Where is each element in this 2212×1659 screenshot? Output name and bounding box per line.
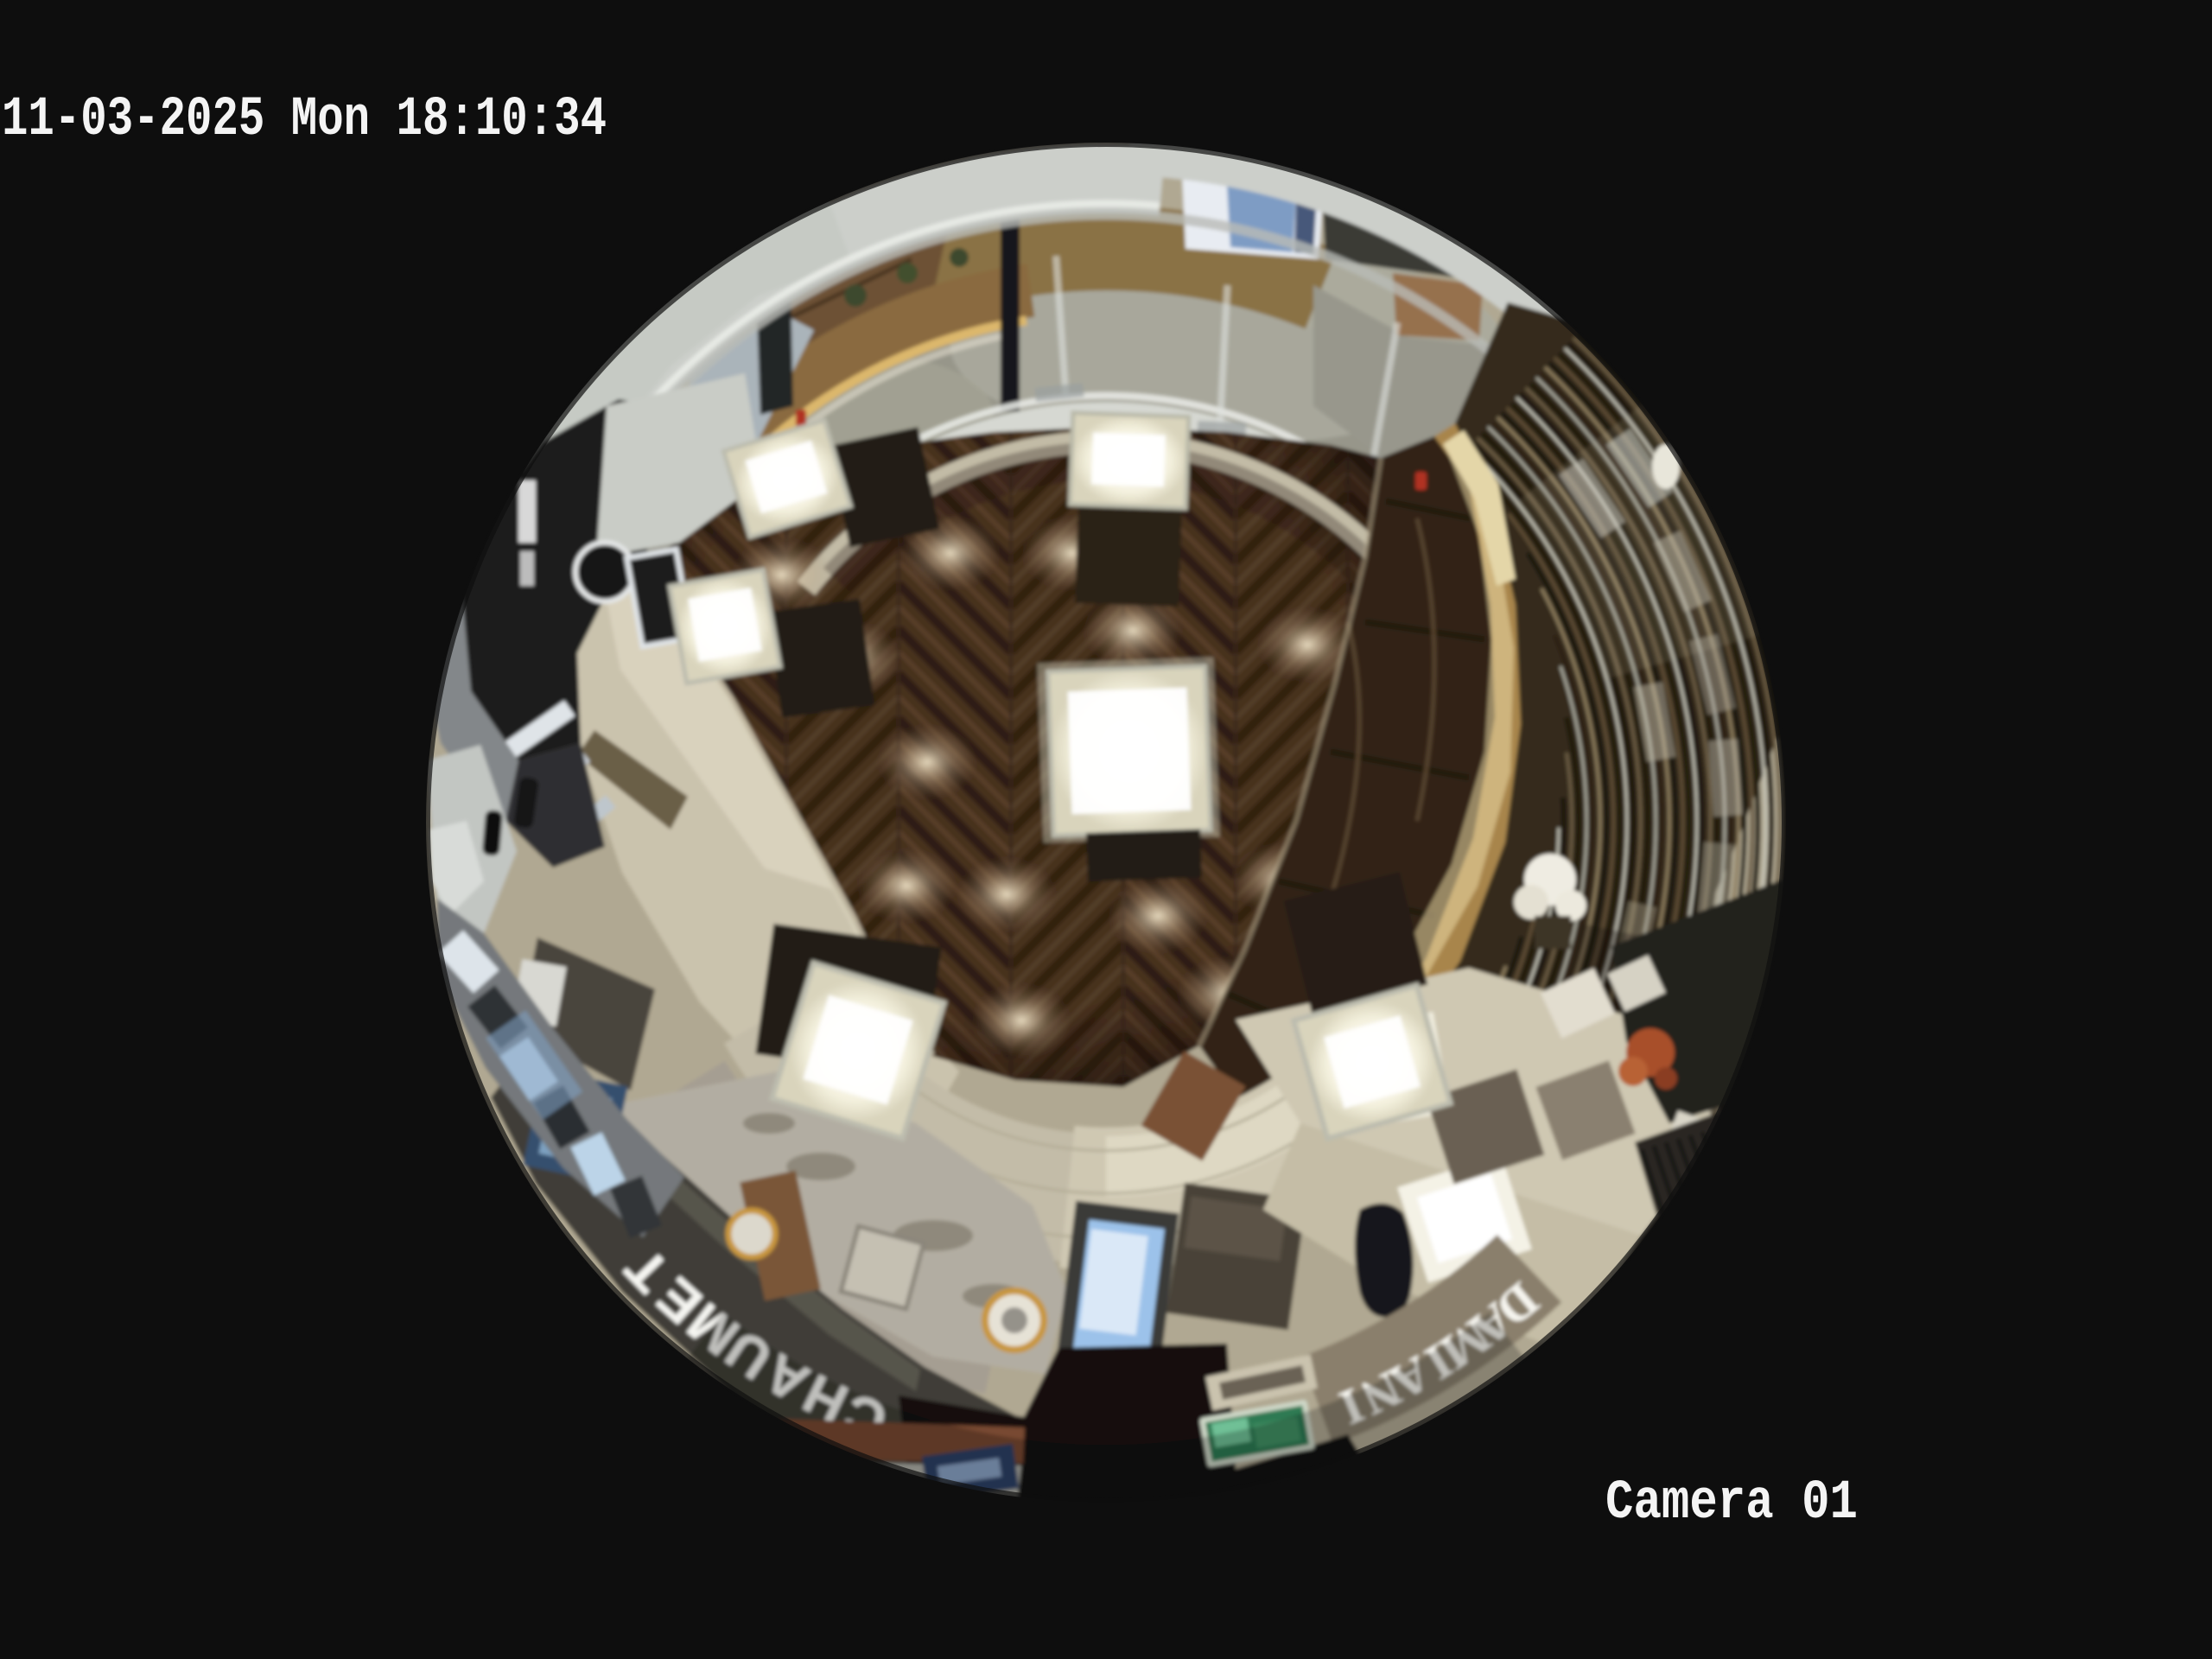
svg-text:Camera 01: Camera 01 (1605, 1472, 1858, 1535)
svg-text:11-03-2025 Mon 18:10:34: 11-03-2025 Mon 18:10:34 (2, 89, 607, 151)
